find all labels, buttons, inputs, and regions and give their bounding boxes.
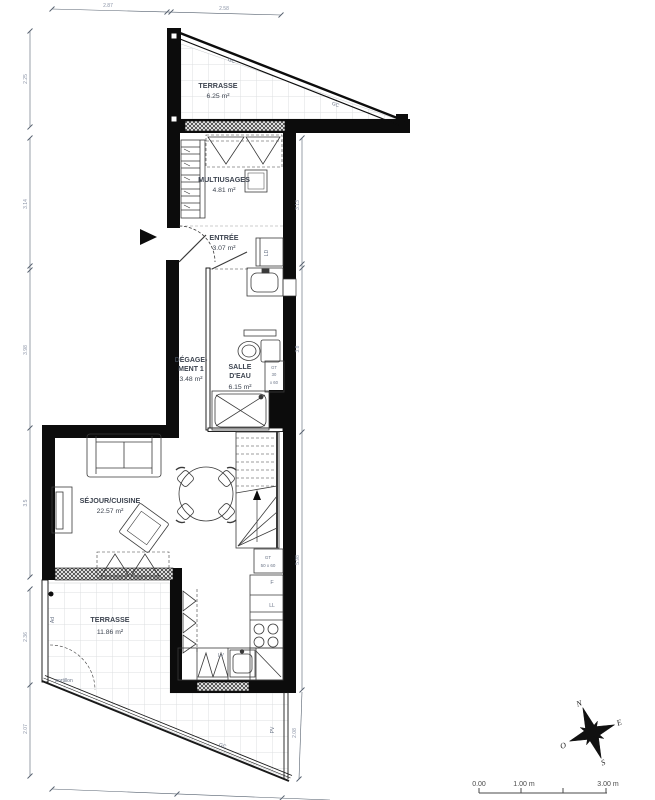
compass-east-label: E xyxy=(614,718,623,729)
gt-bathroom-line2: 30 xyxy=(272,372,277,377)
room-label-salle-deau-2: D'EAU xyxy=(229,373,251,380)
gt-duct-kitchen xyxy=(254,549,283,573)
dim-left-3: 3.98 xyxy=(23,345,29,355)
dim-top-2: 2.58 xyxy=(219,6,229,12)
room-label-terrasse-basse: TERRASSE xyxy=(90,615,129,624)
portillon-label: portillon xyxy=(55,678,73,684)
pv-label: PV xyxy=(270,726,276,733)
sofa xyxy=(87,434,161,477)
scale-tick-0: 0.00 xyxy=(472,781,486,788)
gt-bathroom-line1: GT xyxy=(271,365,277,370)
sink xyxy=(230,650,255,677)
ad-label: Ad xyxy=(50,617,56,623)
dim-left-2: 3.14 xyxy=(23,199,29,209)
room-label-terrasse-haute: TERRASSE xyxy=(198,81,237,90)
room-area-terrasse-basse: 11.86 m² xyxy=(97,629,124,636)
compass-west-label: O xyxy=(559,740,568,751)
kitchen-counter xyxy=(178,575,283,680)
dining-chairs xyxy=(176,468,236,523)
room-label-salle-deau-1: SALLE xyxy=(229,364,252,371)
dim-left-4: 3.5 xyxy=(23,499,29,506)
folding-door-panels xyxy=(183,589,197,653)
room-area-terrasse-haute: 6.25 m² xyxy=(206,93,230,100)
dim-right-1: 3.13 xyxy=(295,200,301,210)
dim-right-4: 2.08 xyxy=(292,728,298,738)
scale-tick-1: 1.00 m xyxy=(513,781,535,788)
room-label-sejour-cuisine: SÉJOUR/CUISINE xyxy=(80,496,141,505)
compass-south-label: S xyxy=(600,758,607,768)
scale-bar xyxy=(479,788,607,793)
fridge-label: F xyxy=(270,580,274,586)
scale-tick-3: 3.00 m xyxy=(597,781,619,788)
room-label-degagement-1: DÉGAGE- xyxy=(175,355,208,364)
compass-north-label: N xyxy=(574,698,584,709)
entrance-door xyxy=(179,226,215,262)
lave-vaisselle-label: LV xyxy=(218,653,224,659)
armchair xyxy=(119,503,169,553)
floor-plan-page: TERRASSE 6.25 m² MULTIUSAGES 4.81 m² ENT… xyxy=(0,0,655,800)
room-area-salle-deau: 6.15 m² xyxy=(228,384,252,391)
dim-right-3: 5.98 xyxy=(295,555,301,565)
gt-kitchen-line1: GT xyxy=(265,555,272,560)
compass-rose xyxy=(570,708,615,759)
ld-label: LD xyxy=(264,249,270,256)
staircase xyxy=(236,432,279,548)
room-area-multiusages: 4.81 m² xyxy=(212,187,236,194)
room-area-entree: 3.07 m² xyxy=(212,245,236,252)
room-area-sejour-cuisine: 22.57 m² xyxy=(97,508,125,515)
gt-kitchen-line2: 50 x 60 xyxy=(261,563,276,568)
room-label-multiusages: MULTIUSAGES xyxy=(198,175,250,184)
dim-top-1: 2.87 xyxy=(103,3,113,9)
bathroom-door xyxy=(210,252,248,269)
dim-left-6: 2.07 xyxy=(23,724,29,734)
room-label-degagement-2: MENT 1 xyxy=(178,366,204,373)
dining-table xyxy=(179,467,233,521)
floor-plan-svg: TERRASSE 6.25 m² MULTIUSAGES 4.81 m² ENT… xyxy=(0,0,655,800)
gt-bathroom-line3: x 60 xyxy=(270,380,279,385)
room-label-entree: ENTRÉE xyxy=(209,233,238,242)
lave-linge-label: LL xyxy=(269,603,275,609)
washbasin xyxy=(247,268,283,296)
shower xyxy=(212,391,269,430)
toilet xyxy=(238,330,280,362)
entrance-arrow-icon xyxy=(140,229,157,245)
dim-left-5: 2.36 xyxy=(23,632,29,642)
hob xyxy=(254,624,278,647)
room-area-degagement: 3.48 m² xyxy=(179,376,203,383)
dim-right-2: 3.8 xyxy=(295,345,301,352)
dim-left-1: 2.25 xyxy=(23,74,29,84)
